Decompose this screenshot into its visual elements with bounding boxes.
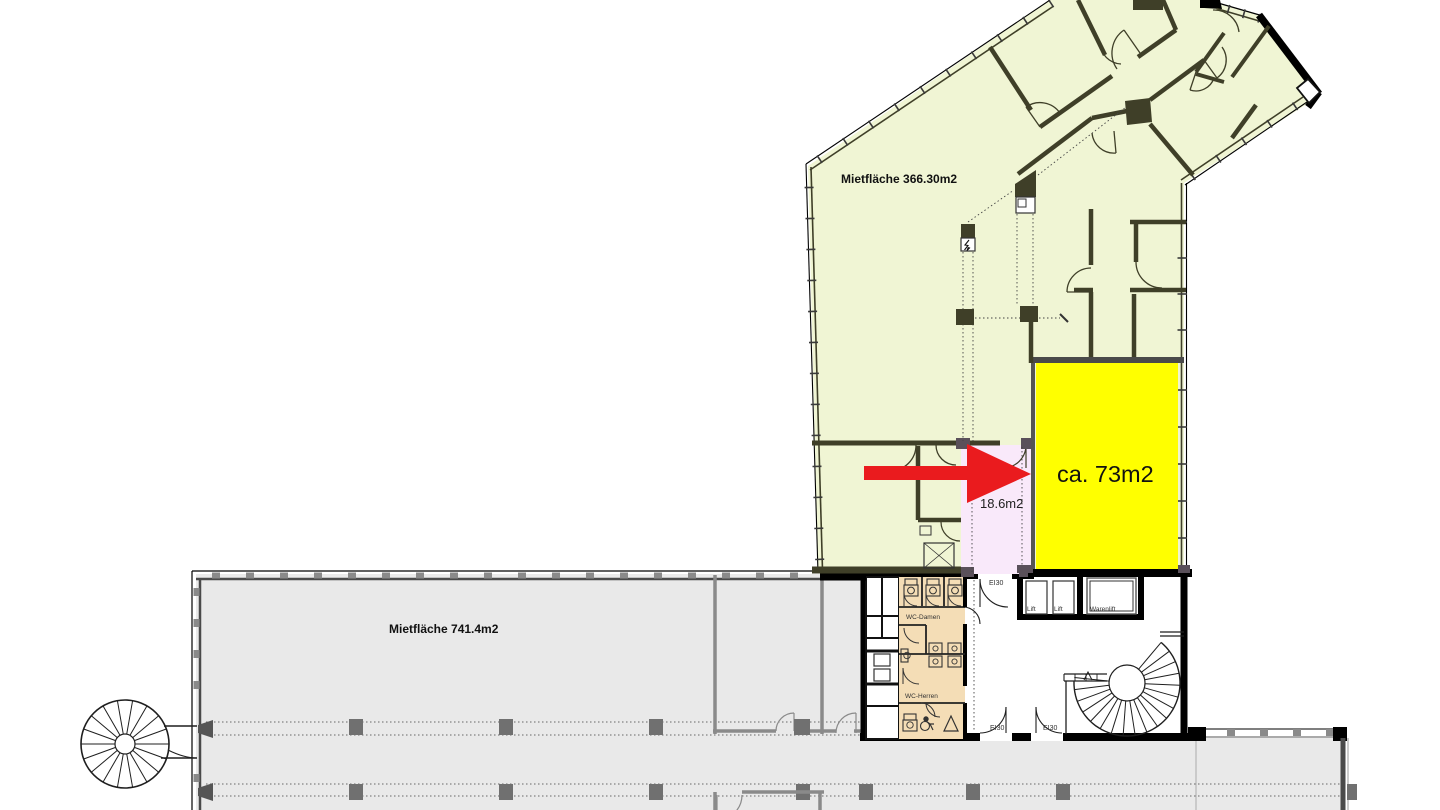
svg-text:WC-Herren: WC-Herren — [905, 693, 938, 700]
svg-text:EI30: EI30 — [989, 580, 1004, 587]
svg-text:Mietfläche 741.4m2: Mietfläche 741.4m2 — [389, 622, 499, 636]
svg-text:Lift: Lift — [1054, 606, 1063, 613]
svg-text:WC-Damen: WC-Damen — [906, 614, 940, 621]
svg-text:EI30: EI30 — [990, 725, 1005, 732]
svg-text:Lift: Lift — [1027, 606, 1036, 613]
svg-text:Warenlift: Warenlift — [1090, 606, 1116, 613]
svg-text:Mietfläche 366.30m2: Mietfläche 366.30m2 — [841, 172, 957, 186]
svg-text:ca. 73m2: ca. 73m2 — [1057, 461, 1154, 487]
svg-text:EI30: EI30 — [1043, 725, 1058, 732]
svg-text:18.6m2: 18.6m2 — [980, 496, 1023, 511]
